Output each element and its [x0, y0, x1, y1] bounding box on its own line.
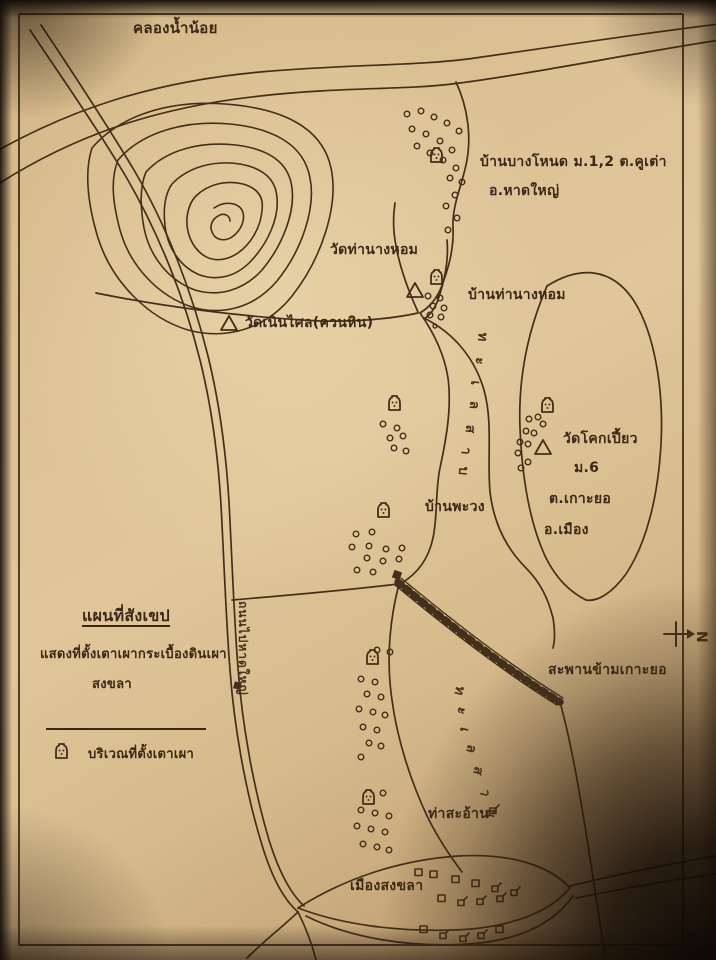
label-wat-khok-piao-moo: ม.6	[574, 461, 599, 476]
road-to-bridge	[232, 584, 398, 600]
house-icons	[415, 805, 520, 942]
label-bridge: สะพานข้ามเกาะยอ	[548, 663, 667, 678]
label-mueang-songkhla: เมืองสงขลา	[350, 879, 423, 894]
kiln-icon	[378, 503, 389, 517]
kiln-icon	[363, 790, 374, 804]
label-road-vertical: ถนนไปหาดใหญ่	[233, 601, 252, 696]
kiln-site-dots-tha-sa-an	[354, 790, 392, 853]
roads-bottom-right	[570, 856, 716, 898]
mueang-songkhla-sandbar	[298, 856, 573, 945]
legend-kiln-label: บริเวณที่ตั้งเตาเผา	[88, 748, 194, 762]
north-letter: N	[693, 631, 709, 643]
legend-kiln-icon	[56, 744, 67, 758]
kiln-icon	[367, 650, 378, 664]
kiln-site-dots-mid	[380, 421, 409, 454]
label-ban-bang-nod-amphoe: อ.หาดใหญ่	[489, 184, 559, 199]
lake-letter: บ	[453, 466, 476, 476]
label-wat-khok-piao-tambon: ต.เกาะยอ	[549, 492, 611, 507]
legend-line1: แสดงที่ตั้งเตาเผากระเบื้องดินเผา	[40, 648, 227, 662]
label-ban-tha-nang-hom: บ้านท่านางหอม	[468, 288, 566, 303]
lake-letter: ท	[472, 332, 495, 343]
label-ban-phawong: บ้านพะวง	[425, 500, 485, 515]
temple-icons	[221, 283, 551, 454]
road-to-wat-noen-salai	[96, 203, 418, 321]
aged-paper: N คลองน้ำน้อย บ้านบางโหนด ม.1,2 ต.คูเต่า…	[0, 0, 716, 960]
legend-line2: สงขลา	[92, 678, 132, 692]
label-wat-khok-piao: วัดโคกเปี้ยว	[563, 432, 638, 447]
label-wat-khok-piao-amphoe: อ.เมือง	[544, 523, 589, 538]
legend-divider	[46, 728, 206, 730]
main-road-west	[30, 25, 316, 960]
north-arrow-icon: N	[664, 622, 709, 646]
kiln-site-dots-river-top	[404, 108, 465, 233]
label-canal: คลองน้ำน้อย	[133, 20, 218, 37]
photographed-map-page: N คลองน้ำน้อย บ้านบางโหนด ม.1,2 ต.คูเต่า…	[0, 0, 716, 960]
kiln-icon	[431, 270, 442, 284]
label-tha-sa-an: ท่าสะอ้าน	[428, 807, 489, 822]
kiln-icons	[56, 148, 553, 804]
label-ban-bang-nod: บ้านบางโหนด ม.1,2 ต.คูเต่า	[480, 155, 667, 170]
label-wat-tha-nang-hom: วัดท่านางหอม	[330, 243, 418, 258]
legend-title: แผนที่สังเขป	[82, 607, 170, 625]
lake-letter: ล	[464, 400, 487, 410]
kiln-icon	[389, 396, 400, 410]
river-meander	[389, 82, 554, 872]
kiln-icon	[542, 398, 553, 412]
temple-triangle-icon	[221, 316, 237, 330]
label-wat-noen-salai: วัดเนินไศล(ควนหิน)	[245, 316, 373, 331]
temple-triangle-icon	[535, 440, 551, 454]
kiln-site-dots-ban-phawong	[349, 529, 405, 575]
map-drawing: N	[0, 0, 716, 960]
